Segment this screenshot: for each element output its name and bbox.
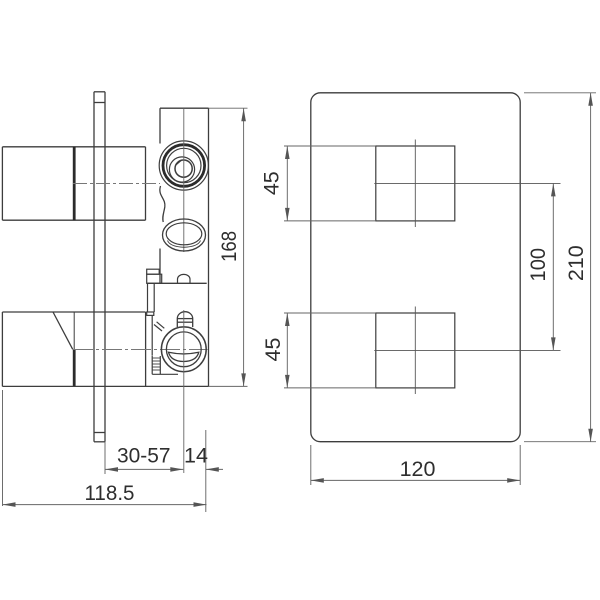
svg-text:14: 14 (184, 444, 208, 468)
svg-text:100: 100 (526, 248, 550, 282)
svg-text:118.5: 118.5 (85, 481, 135, 505)
svg-text:45: 45 (260, 171, 284, 195)
svg-text:168: 168 (217, 231, 241, 262)
svg-text:120: 120 (400, 457, 436, 481)
svg-text:45: 45 (261, 338, 285, 362)
svg-text:210: 210 (564, 245, 588, 281)
svg-text:30-57: 30-57 (117, 444, 171, 468)
